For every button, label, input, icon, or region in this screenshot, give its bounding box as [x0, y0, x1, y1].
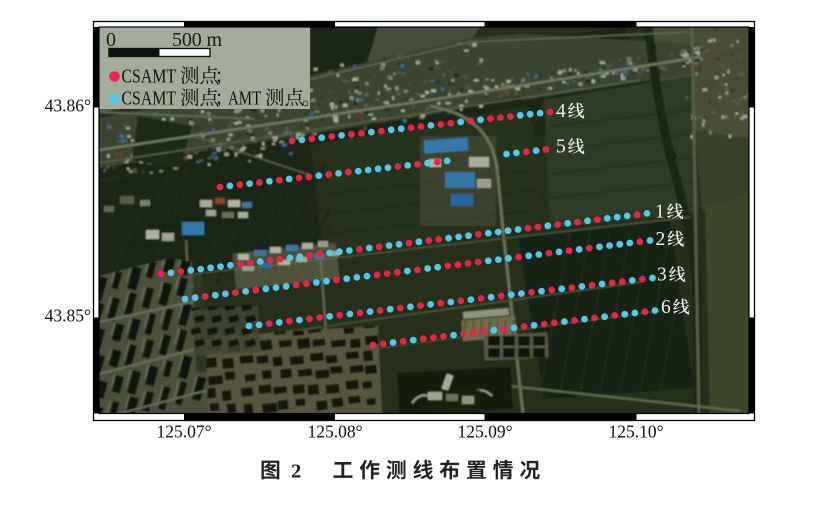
svg-text:5: 5 [556, 137, 566, 158]
svg-text:2: 2 [656, 229, 666, 250]
svg-text:6: 6 [661, 297, 671, 318]
svg-text:500 m: 500 m [172, 29, 222, 51]
svg-text:125.08°: 125.08° [307, 422, 362, 442]
svg-text:4: 4 [556, 101, 566, 122]
svg-text:125.07°: 125.07° [156, 422, 211, 442]
svg-text:CSAMT: CSAMT [122, 67, 177, 88]
svg-text:125.09°: 125.09° [457, 422, 512, 442]
svg-text:1: 1 [655, 202, 665, 223]
svg-text:43.86°: 43.86° [45, 96, 91, 116]
svg-text:3: 3 [657, 265, 667, 286]
svg-text:0: 0 [106, 29, 116, 51]
svg-text:CSAMT: CSAMT [122, 89, 177, 110]
svg-text:AMT: AMT [228, 89, 261, 110]
svg-text:2: 2 [291, 461, 301, 483]
svg-text:43.85°: 43.85° [45, 306, 91, 326]
svg-text:125.10°: 125.10° [608, 422, 663, 442]
